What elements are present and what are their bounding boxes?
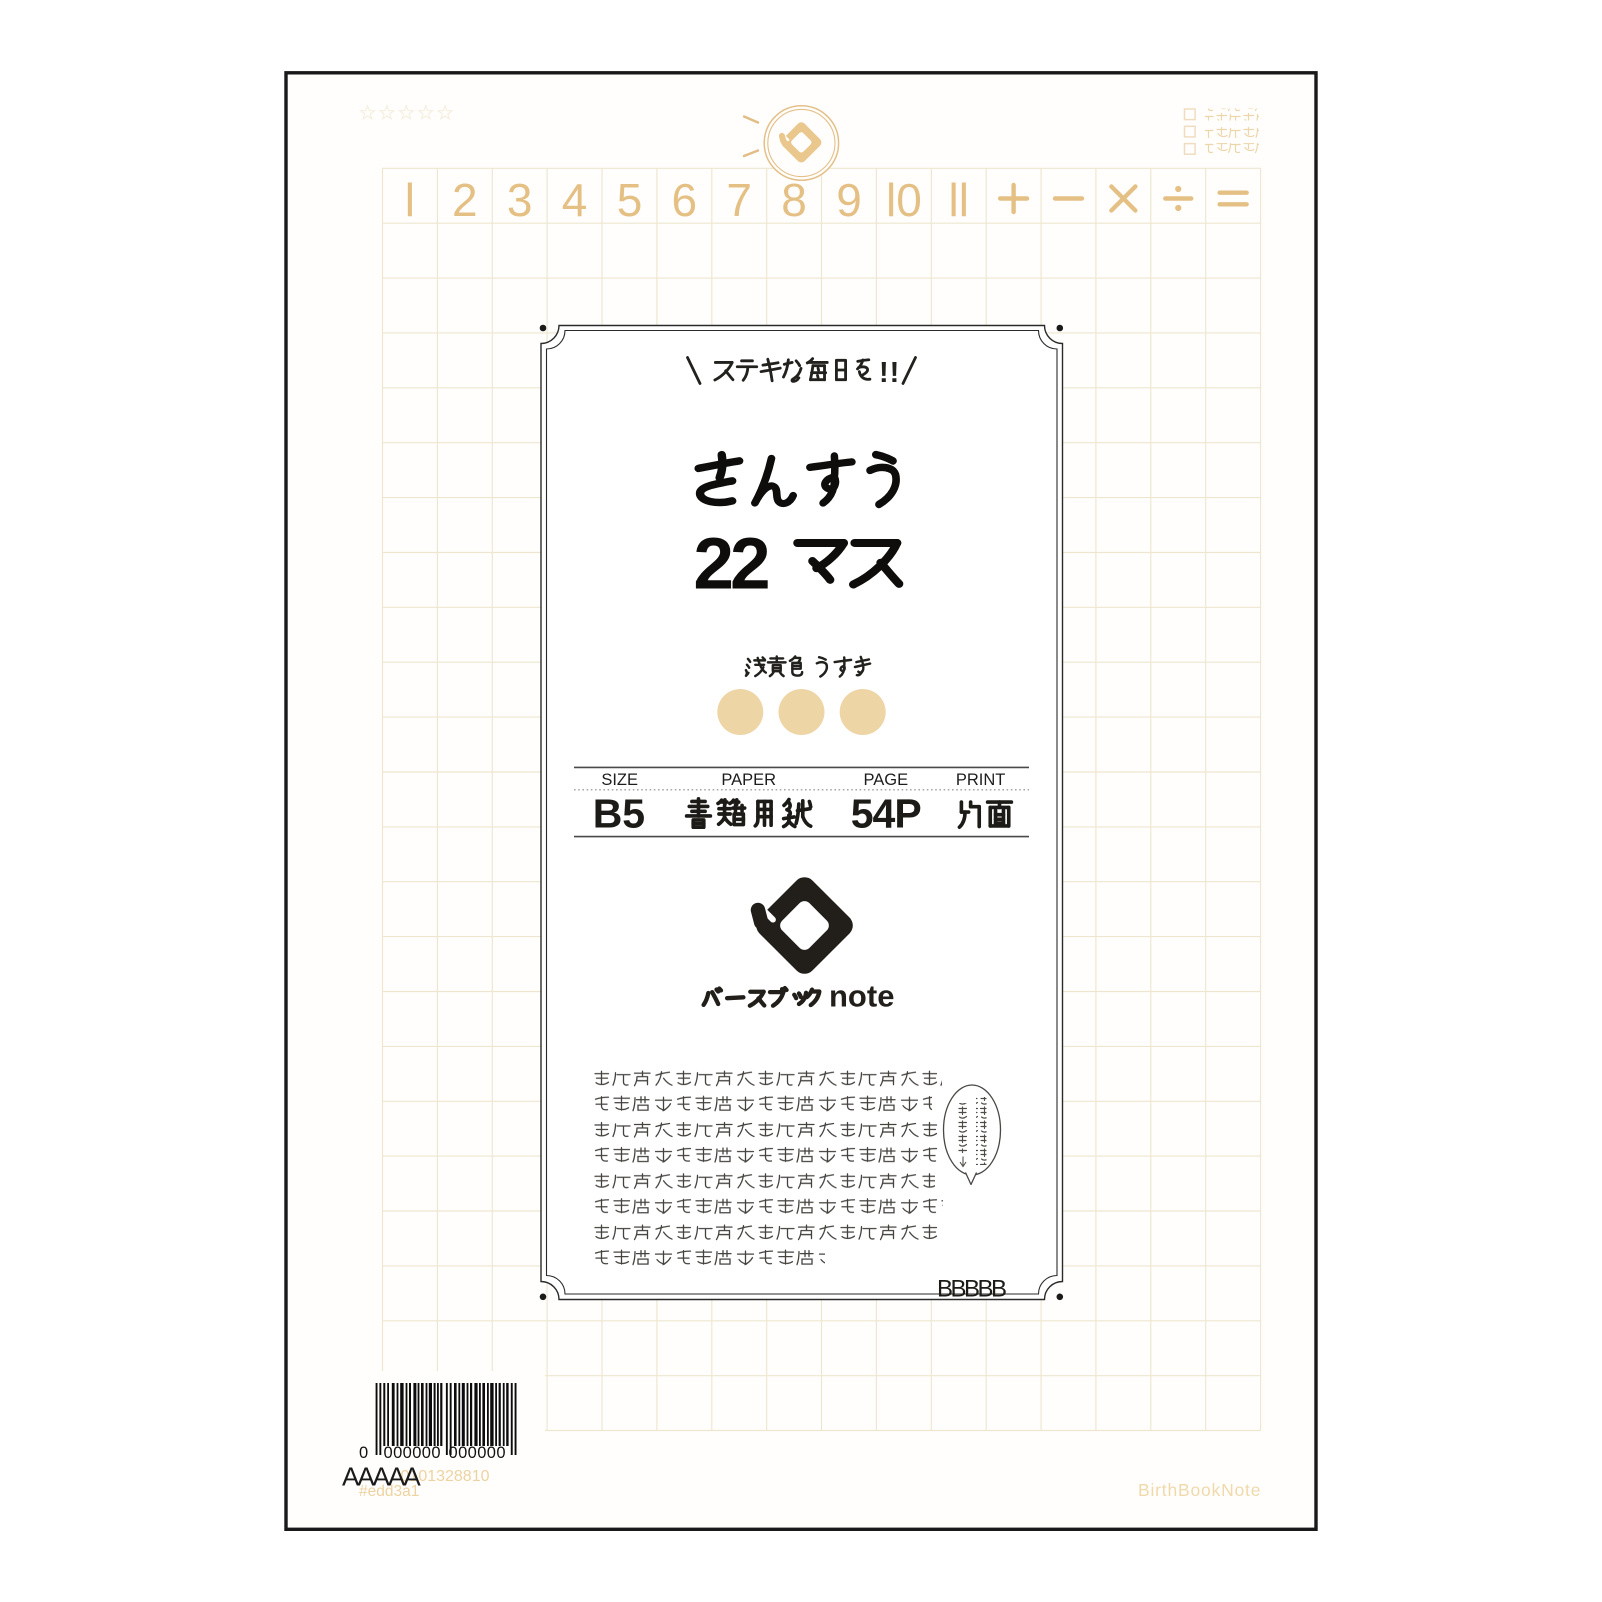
svg-text:000000: 000000 [384,1444,441,1462]
svg-text:4: 4 [562,174,588,226]
svg-text:22: 22 [693,524,768,605]
svg-text:l0: l0 [886,174,922,226]
svg-text:2: 2 [452,174,478,226]
svg-text:54P: 54P [851,791,921,837]
svg-text:0: 0 [359,1444,368,1462]
svg-text:8: 8 [781,174,807,226]
svg-text:PRINT: PRINT [956,771,1006,789]
svg-text:3: 3 [507,174,533,226]
svg-text:6: 6 [672,174,698,226]
svg-text:000000: 000000 [449,1444,506,1462]
svg-text:l: l [405,174,415,226]
svg-text:BirthBookNote: BirthBookNote [1138,1480,1261,1500]
svg-text:9: 9 [836,174,862,226]
svg-text:B5: B5 [593,791,645,837]
svg-text:!!: !! [879,357,900,389]
svg-text:PAPER: PAPER [721,771,776,789]
svg-text:SIZE: SIZE [601,771,638,789]
svg-text:note: note [829,979,894,1014]
svg-text:BBBBB: BBBBB [937,1276,1006,1303]
svg-text:ll: ll [948,174,968,226]
svg-text:5: 5 [617,174,643,226]
svg-text:7: 7 [726,174,752,226]
svg-text:PAGE: PAGE [863,771,908,789]
svg-text:#edd3a1: #edd3a1 [359,1483,419,1500]
